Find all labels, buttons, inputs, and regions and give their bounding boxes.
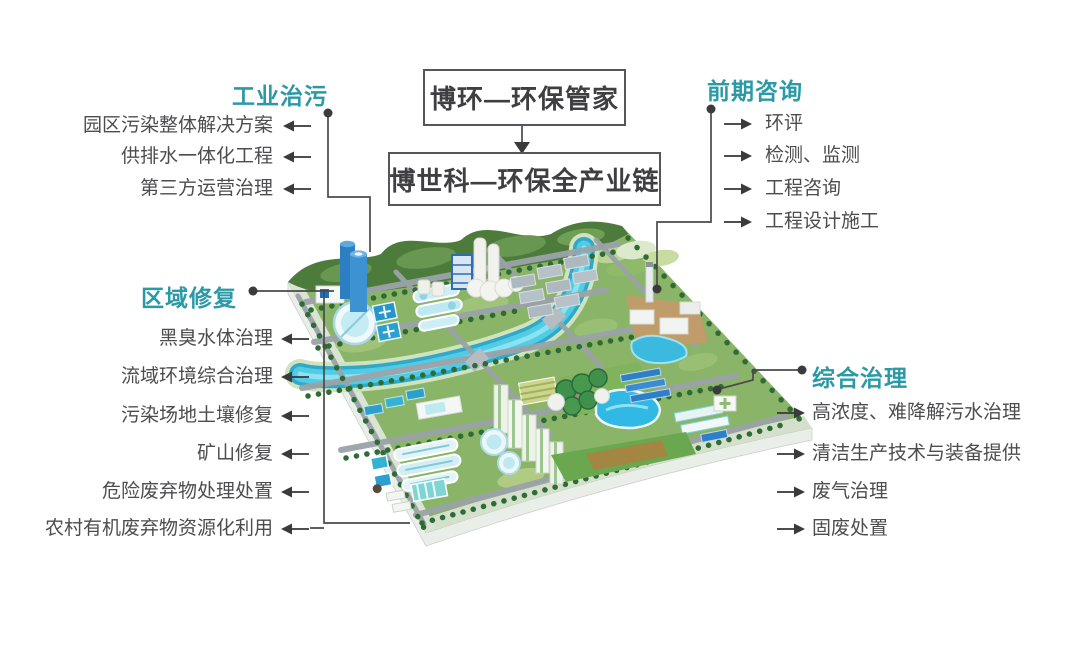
arrow-left-icon — [281, 370, 309, 384]
flow-box-primary-label: 博环—环保管家 — [430, 79, 619, 116]
arrow-right-icon — [724, 182, 752, 196]
pond — [631, 336, 686, 363]
field-patches — [334, 291, 719, 492]
oxidation-ditches — [370, 438, 465, 497]
park-lake — [557, 362, 660, 428]
hills — [288, 222, 628, 294]
park-illustration — [266, 210, 828, 560]
item-label: 固废处置 — [812, 517, 888, 541]
arrow-left-icon — [281, 332, 309, 346]
roads — [298, 240, 786, 524]
arrow-left-icon — [283, 150, 311, 164]
greenhouse-buildings — [372, 472, 449, 515]
strip-pools — [363, 382, 463, 428]
connector-comprehensive — [719, 370, 802, 389]
terraced-fields — [592, 238, 680, 279]
flow-box-secondary: 博世科—环保全产业链 — [388, 152, 661, 206]
item-label: 危险废弃物处理处置 — [102, 480, 273, 504]
connector-remediation — [253, 291, 410, 528]
item-label: 高浓度、难降解污水治理 — [812, 401, 1021, 425]
group-industrial-title: 工业治污 — [232, 77, 328, 111]
group-comprehensive-title: 综合治理 — [812, 359, 908, 393]
item-label: 污染场地土壤修复 — [121, 404, 273, 428]
flow-box-secondary-label: 博世科—环保全产业链 — [390, 161, 660, 198]
river — [300, 248, 584, 377]
item-label: 工程咨询 — [765, 177, 841, 201]
arrow-left-icon — [283, 182, 311, 196]
terrain — [288, 226, 812, 533]
industrial-zone — [626, 262, 708, 363]
hospital-building — [714, 396, 736, 411]
digester-tanks — [548, 369, 610, 415]
bridge — [465, 348, 489, 372]
aeration-lanes — [519, 377, 558, 405]
residential-towers — [494, 385, 563, 484]
plate-edge — [288, 282, 812, 546]
settling-tanks — [481, 429, 520, 474]
connector-dot — [713, 386, 722, 395]
arrow-right-icon — [777, 485, 805, 499]
tree-rows — [302, 238, 804, 528]
arrow-right-icon — [777, 447, 805, 461]
arrow-left-icon — [281, 447, 309, 461]
factory-sheds — [509, 253, 603, 320]
item-label: 工程设计施工 — [765, 210, 879, 234]
arrow-left-icon — [283, 119, 311, 133]
arrow-left-icon — [281, 485, 309, 499]
group-remediation-title: 区域修复 — [141, 279, 237, 313]
item-label: 园区污染整体解决方案 — [83, 114, 273, 138]
item-label: 流域环境综合治理 — [121, 365, 273, 389]
chimney — [646, 262, 653, 302]
item-label: 环评 — [765, 112, 803, 136]
bridge — [542, 306, 566, 330]
item-label: 供排水一体化工程 — [121, 145, 273, 169]
connector-dot — [798, 366, 807, 375]
item-label: 农村有机废弃物资源化利用 — [45, 517, 273, 541]
group-consulting-title: 前期咨询 — [707, 72, 803, 106]
connector-industrial — [328, 113, 370, 252]
arrow-right-icon — [777, 406, 805, 420]
chemical-plant — [418, 238, 524, 301]
item-label: 矿山修复 — [197, 442, 273, 466]
connector-dot — [653, 285, 662, 294]
arrow-right-icon — [724, 149, 752, 163]
arrow-right-icon — [724, 215, 752, 229]
swimming-lake — [596, 390, 660, 428]
sports-field — [551, 432, 696, 482]
connector-consulting — [657, 109, 711, 287]
item-label: 黑臭水体治理 — [159, 327, 273, 351]
blue-storage-tank — [340, 244, 355, 299]
item-label: 检测、监测 — [765, 144, 860, 168]
infographic: 博环—环保管家 博世科—环保全产业链 工业治污 园区污染整体解决方案 供排水一体… — [0, 0, 1080, 647]
connector-dot — [249, 287, 258, 296]
item-label: 清洁生产技术与装备提供 — [812, 442, 1021, 466]
arrow-left-icon — [281, 522, 309, 536]
blue-storage-tank — [350, 254, 367, 312]
item-label: 废气治理 — [812, 480, 888, 504]
arrow-right-icon — [724, 117, 752, 131]
arrow-left-icon — [281, 409, 309, 423]
water-treatment-plant — [316, 241, 466, 344]
solar-panels — [620, 367, 670, 404]
east-buildings — [674, 403, 732, 446]
item-label: 第三方运营治理 — [140, 177, 273, 201]
arrow-right-icon — [777, 522, 805, 536]
flow-box-primary: 博环—环保管家 — [423, 69, 626, 126]
